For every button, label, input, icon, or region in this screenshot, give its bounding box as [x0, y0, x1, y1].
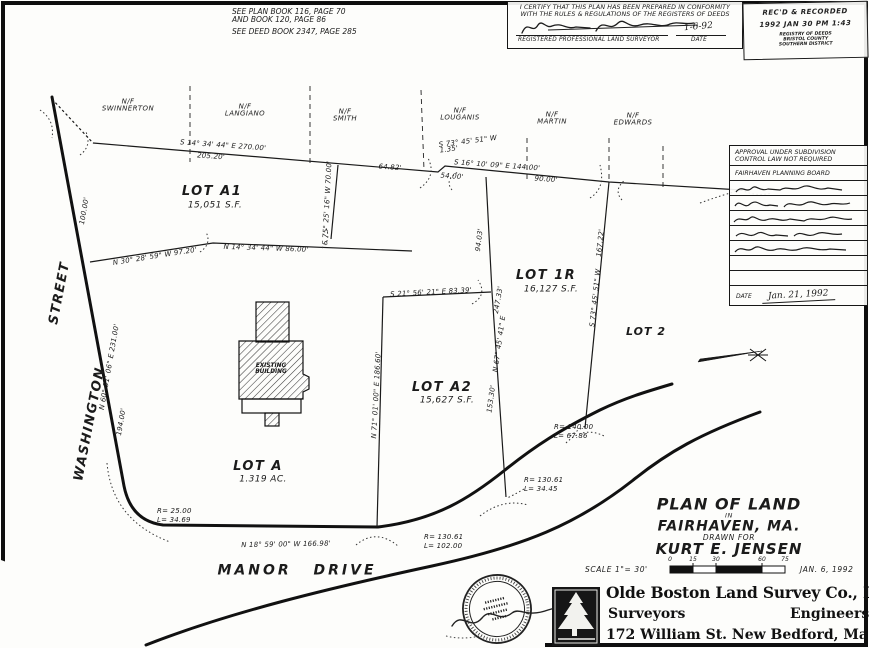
recording-stamp: REC'D & RECORDED 1992 JAN 30 PM 1:43 REG… — [742, 1, 868, 61]
scale-tick: 0 — [668, 557, 672, 563]
dimension-label: 54.00' — [440, 173, 464, 182]
curve-length: L= 34.69 — [157, 516, 192, 525]
nf-name: SMITH — [333, 116, 357, 123]
empty-signature-row — [730, 256, 867, 271]
lot-1r-area: 16,127 S.F. — [524, 285, 578, 294]
curve-radius: R= 25.00 — [157, 507, 192, 516]
curve-radius: R= 130.61 — [424, 533, 463, 542]
company-engineers: Engineers — [790, 607, 869, 622]
nf-name: SWINNERTON — [102, 106, 154, 113]
building-label-line: BUILDING — [255, 369, 287, 375]
nf-name: LANGIANO — [225, 111, 265, 118]
approval-date-value: Jan. 21, 1992 — [762, 288, 835, 304]
stamp-line: REC'D & RECORDED — [744, 7, 867, 18]
seal-underline-dots — [446, 636, 480, 638]
stamp-line: 1992 JAN 30 PM 1:43 — [744, 19, 867, 30]
approval-header: APPROVAL UNDER SUBDIVISION CONTROL LAW N… — [730, 146, 867, 166]
nf-name: LOUGANIS — [440, 115, 479, 122]
dimension-label: 90.00' — [534, 176, 558, 185]
certification-text: I CERTIFY THAT THIS PLAN HAS BEEN PREPAR… — [508, 4, 742, 11]
surveyor-seal — [456, 568, 538, 648]
curve-radius: R= 130.61 — [524, 476, 563, 485]
date-label: DATE — [691, 37, 707, 43]
surveyor-title: REGISTERED PROFESSIONAL LAND SURVEYOR — [518, 37, 660, 43]
abutter-smith: N/F SMITH — [333, 109, 357, 124]
lot-a2-area: 15,627 S.F. — [420, 396, 474, 405]
abutter-louganis: N/F LOUGANIS — [440, 108, 479, 123]
building-porch — [242, 399, 301, 413]
curve-radius: R= 140.00 — [554, 423, 593, 432]
abutter-swinnerton: N/F SWINNERTON — [102, 99, 154, 114]
lot-1r-name: LOT 1R — [516, 269, 576, 283]
curve-data: R= 140.00 L= 67.86 — [554, 423, 593, 441]
note-line: SEE DEED BOOK 2347, PAGE 285 — [232, 28, 357, 36]
abutter-langiano: N/F LANGIANO — [225, 104, 265, 119]
approval-box: APPROVAL UNDER SUBDIVISION CONTROL LAW N… — [729, 145, 868, 306]
board-signature-row — [730, 211, 867, 226]
company-name: Olde Boston Land Survey Co., Inc. — [606, 585, 869, 601]
signature-rule — [516, 35, 668, 36]
scale-tick: 60 — [758, 557, 766, 563]
lot2-symbol — [698, 349, 768, 362]
board-signature-row — [730, 196, 867, 211]
dimension-label: N 18° 59' 00" W 166.98' — [241, 541, 331, 550]
nf-name: MARTIN — [537, 119, 567, 126]
curve-data: R= 130.61 L= 102.00 — [424, 533, 463, 551]
road-lines — [52, 97, 760, 645]
abutter-division-lines — [190, 86, 663, 187]
lot-a2-name: LOT A2 — [412, 381, 472, 395]
approval-header-line: CONTROL LAW NOT REQUIRED — [735, 156, 867, 163]
lot-a-name: LOT A — [233, 460, 283, 474]
board-signature-row — [730, 241, 867, 256]
board-signature-row — [730, 181, 867, 196]
board-signature-row — [730, 226, 867, 241]
nf-name: EDWARDS — [614, 120, 653, 127]
date-rule — [676, 35, 726, 36]
street-name-manor-drive: MANOR DRIVE — [217, 564, 376, 579]
note-line: AND BOOK 120, PAGE 86 — [232, 16, 357, 24]
abutter-martin: N/F MARTIN — [537, 112, 567, 127]
plan-date: JAN. 6, 1992 — [800, 566, 854, 574]
scale-tick: 75 — [781, 557, 789, 563]
lot-a1-name: LOT A1 — [182, 185, 242, 199]
company-address: 172 William St. New Bedford, Ma. — [606, 628, 869, 643]
approval-date-row: DATE Jan. 21, 1992 — [730, 286, 867, 304]
planning-board-label: FAIRHAVEN PLANNING BOARD — [730, 166, 867, 181]
empty-signature-row — [730, 271, 867, 286]
building-step — [265, 413, 279, 426]
scale-tick: 30 — [712, 557, 720, 563]
abutter-edwards: N/F EDWARDS — [614, 113, 653, 128]
curve-length: L= 34.45 — [524, 485, 563, 494]
curve-data: R= 130.61 L= 34.45 — [524, 476, 563, 494]
plan-sheet: SEE PLAN BOOK 116, PAGE 70 AND BOOK 120,… — [0, 0, 869, 648]
certification-box: I CERTIFY THAT THIS PLAN HAS BEEN PREPAR… — [507, 1, 743, 49]
curve-data: R= 25.00 L= 34.69 — [157, 507, 192, 525]
curve-length: L= 102.00 — [424, 542, 463, 551]
dimension-label: 64.82' — [378, 164, 402, 173]
approval-header-line: APPROVAL UNDER SUBDIVISION — [735, 149, 867, 156]
lot-a1-area: 15,051 S.F. — [188, 201, 242, 210]
washington-manor-north-edge — [52, 97, 672, 527]
approval-date-label: DATE — [736, 293, 752, 300]
company-logo — [552, 587, 600, 646]
lot-a-area: 1.319 AC. — [239, 475, 287, 484]
existing-building-label: EXISTING BUILDING — [255, 363, 287, 375]
scale-tick: 15 — [689, 557, 697, 563]
company-surveyors: Surveyors — [608, 607, 685, 622]
plan-book-notes: SEE PLAN BOOK 116, PAGE 70 AND BOOK 120,… — [232, 8, 357, 36]
curve-length: L= 67.86 — [554, 432, 593, 441]
scale-label: SCALE 1"= 30' — [585, 566, 648, 574]
scale-bar — [670, 563, 785, 573]
lot-2-name: LOT 2 — [626, 326, 666, 338]
